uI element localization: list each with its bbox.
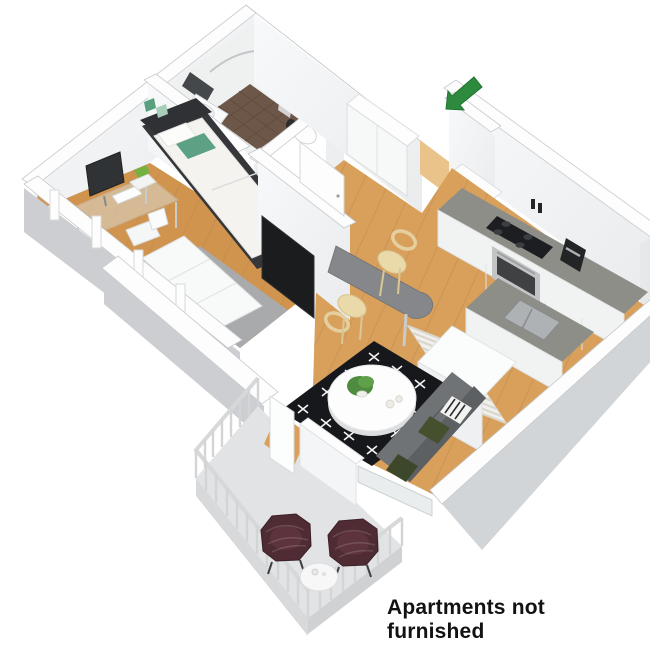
floorplan-3d-render	[0, 0, 650, 646]
floorplan-figure: Apartments not furnished	[0, 0, 650, 646]
window-post	[92, 216, 101, 248]
door-knob-icon	[336, 194, 339, 197]
burner	[494, 229, 503, 235]
window-post	[50, 190, 59, 220]
spice-jar	[538, 203, 542, 213]
balcony-table	[300, 563, 338, 591]
round-table	[328, 365, 416, 431]
spice-jar	[531, 199, 535, 209]
candle	[396, 396, 402, 402]
candle	[386, 400, 394, 408]
bar-table-leg	[404, 314, 406, 346]
table-item	[312, 569, 318, 575]
caption: Apartments not furnished	[387, 596, 647, 644]
burner	[524, 234, 533, 240]
burner	[502, 221, 511, 227]
table-item	[322, 572, 326, 576]
plant-leaves	[358, 376, 374, 388]
faucet-icon	[542, 304, 546, 308]
burner	[516, 242, 525, 248]
plant-pot	[357, 391, 367, 397]
